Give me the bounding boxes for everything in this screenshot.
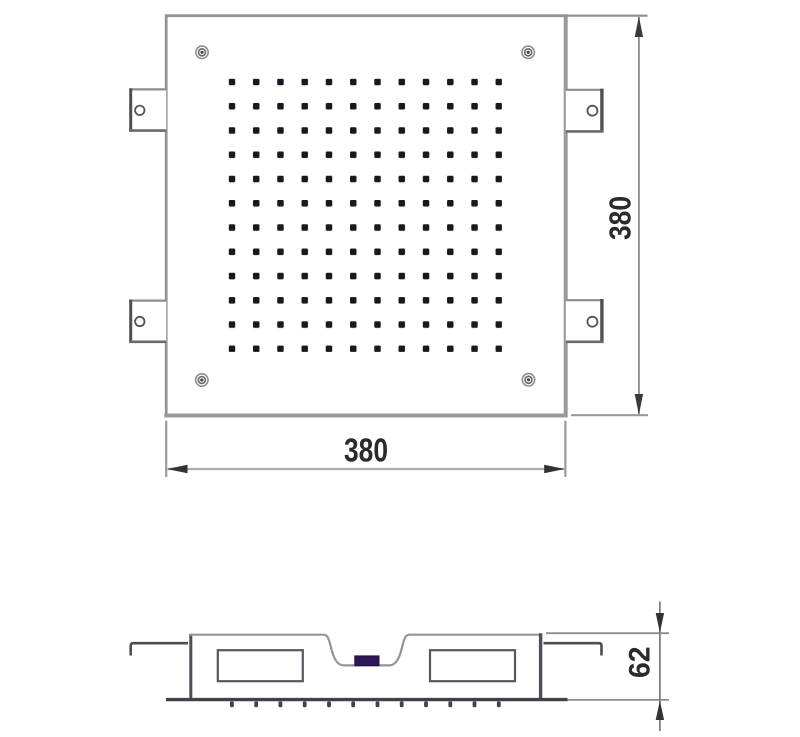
svg-text:380: 380	[344, 431, 388, 468]
svg-text:62: 62	[623, 647, 656, 679]
svg-text:380: 380	[603, 196, 638, 240]
